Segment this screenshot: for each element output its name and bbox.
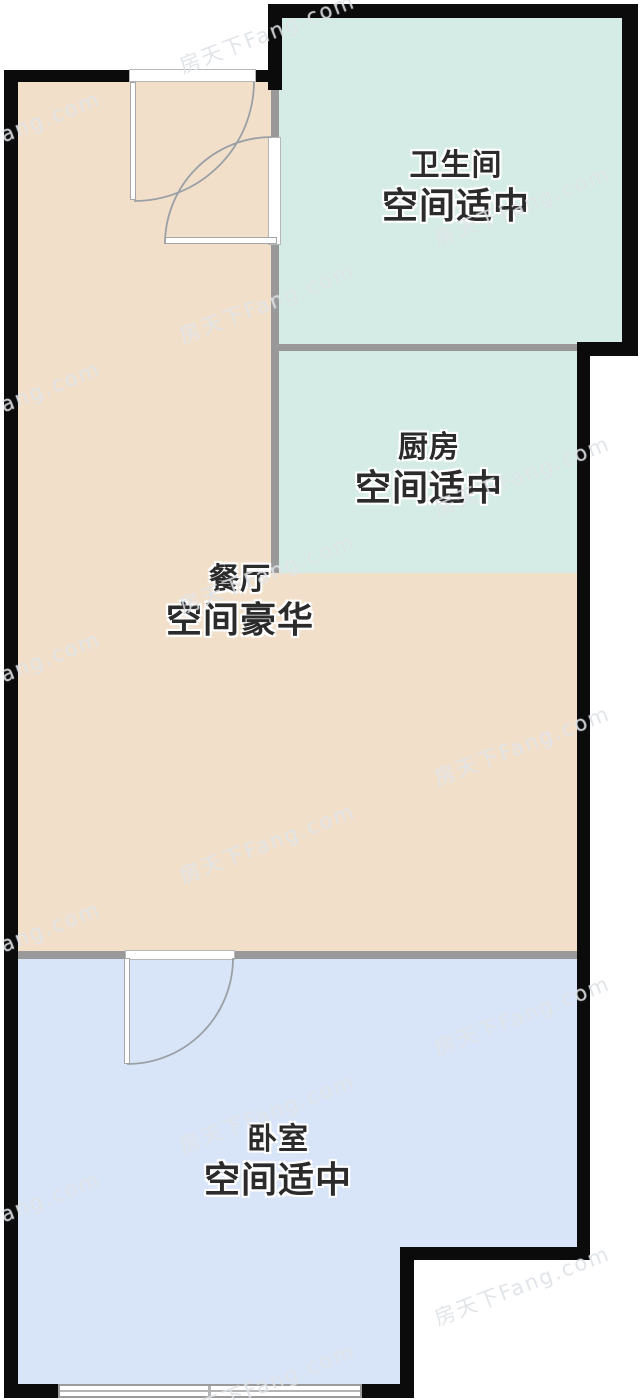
bathroom-size-note: 空间适中 [382, 184, 530, 228]
floor-plan: 卫生间 空间适中 厨房 空间适中 餐厅 空间豪华 卧室 空间适中 房天下Fang… [0, 0, 642, 1400]
wall-bottom-right [362, 1384, 414, 1398]
bedroom-area-upper [18, 952, 577, 1247]
kitchen-size-note: 空间适中 [355, 466, 503, 510]
bedroom-area-lower [18, 1247, 400, 1384]
bedroom-name: 卧室 [204, 1122, 352, 1159]
bathroom-name: 卫生间 [382, 148, 530, 185]
bathroom-kitchen-divider [279, 344, 583, 351]
room-label-bedroom: 卧室 空间适中 [204, 1122, 352, 1203]
wall-notch-horizontal [400, 1247, 590, 1260]
wall-bathroom-top [268, 4, 638, 18]
bedroom-door-opening [125, 950, 235, 960]
wall-notch-vertical [400, 1247, 414, 1398]
room-label-bathroom: 卫生间 空间适中 [382, 148, 530, 229]
wall-top-left [4, 70, 130, 82]
bathroom-partition-upper [271, 82, 279, 137]
wall-bathroom-right [622, 4, 638, 356]
room-label-kitchen: 厨房 空间适中 [355, 430, 503, 511]
wall-bottom-left [4, 1384, 58, 1398]
bathroom-door-leaf [165, 237, 277, 244]
bedroom-divider-right [235, 951, 583, 959]
entry-door-leaf [130, 82, 136, 200]
bedroom-door-leaf [124, 958, 130, 1064]
bathroom-kitchen-partition-left [271, 245, 279, 573]
bedroom-size-note: 空间适中 [204, 1158, 352, 1202]
wall-left [4, 70, 18, 1398]
kitchen-name: 厨房 [355, 430, 503, 467]
bedroom-window [58, 1384, 362, 1398]
entry-door-opening [129, 69, 256, 82]
bathroom-door-opening [268, 137, 281, 245]
bedroom-divider-left [18, 951, 125, 959]
dining-name: 餐厅 [166, 562, 314, 599]
wall-right [577, 342, 590, 1260]
window-mullion [208, 1386, 211, 1396]
dining-size-note: 空间豪华 [166, 598, 314, 642]
room-label-dining: 餐厅 空间豪华 [166, 562, 314, 643]
